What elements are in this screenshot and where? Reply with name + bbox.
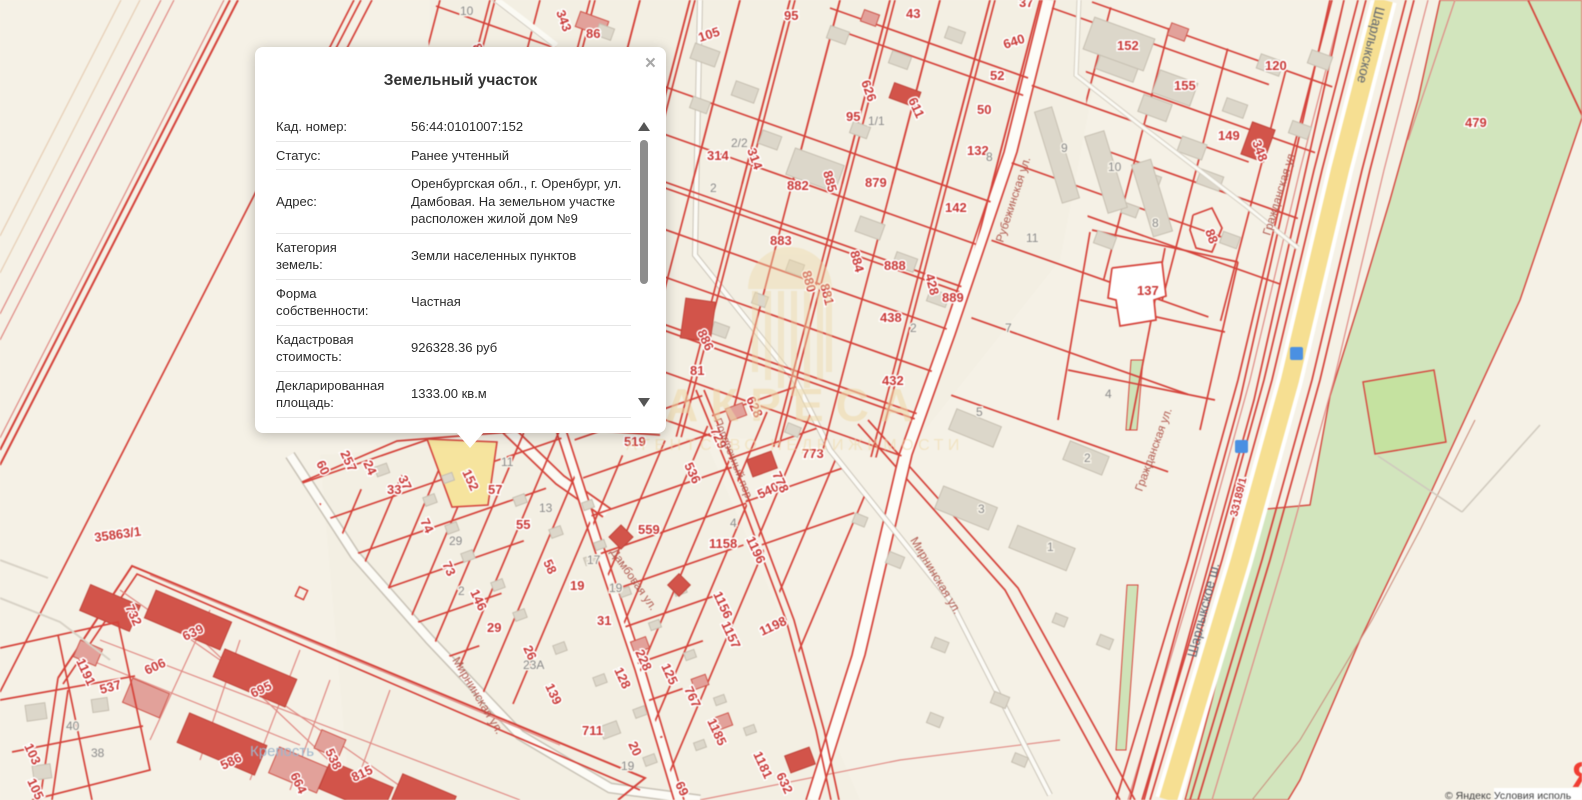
svg-text:40: 40 <box>66 719 80 733</box>
svg-text:889: 889 <box>942 290 964 305</box>
svg-text:882: 882 <box>787 178 809 193</box>
svg-text:Крепость: Крепость <box>250 743 314 760</box>
svg-text:9: 9 <box>1061 141 1068 155</box>
svg-text:95: 95 <box>784 8 798 23</box>
svg-text:3: 3 <box>978 502 985 516</box>
svg-text:29: 29 <box>487 620 501 635</box>
svg-text:2: 2 <box>710 181 717 195</box>
svg-text:4: 4 <box>730 516 737 530</box>
svg-text:8: 8 <box>986 150 993 164</box>
svg-text:142: 142 <box>945 200 967 215</box>
svg-text:81: 81 <box>690 363 704 378</box>
svg-text:95: 95 <box>846 109 860 124</box>
svg-text:43: 43 <box>906 6 920 21</box>
svg-text:17: 17 <box>587 553 601 567</box>
svg-text:2: 2 <box>910 321 917 335</box>
svg-text:152: 152 <box>1117 38 1139 53</box>
svg-text:10: 10 <box>460 4 474 18</box>
svg-text:4: 4 <box>1105 387 1112 401</box>
svg-text:120: 120 <box>1265 58 1287 73</box>
svg-text:8: 8 <box>1152 216 1159 230</box>
svg-text:86: 86 <box>586 26 600 41</box>
svg-text:149: 149 <box>1218 128 1240 143</box>
svg-text:31: 31 <box>597 613 611 628</box>
svg-text:37: 37 <box>1019 0 1033 10</box>
svg-text:52: 52 <box>990 68 1004 83</box>
svg-text:33: 33 <box>387 482 401 497</box>
svg-text:883: 883 <box>770 233 792 248</box>
svg-text:50: 50 <box>977 102 991 117</box>
svg-text:2: 2 <box>458 584 465 598</box>
svg-text:155: 155 <box>1174 78 1196 93</box>
svg-text:479: 479 <box>1465 115 1487 130</box>
svg-text:11: 11 <box>501 455 514 469</box>
svg-text:2: 2 <box>1084 451 1091 465</box>
svg-text:879: 879 <box>865 175 887 190</box>
svg-text:57: 57 <box>488 482 502 497</box>
svg-text:1/1: 1/1 <box>868 114 885 128</box>
svg-text:888: 888 <box>884 258 906 273</box>
svg-text:7: 7 <box>1005 321 1012 335</box>
svg-text:438: 438 <box>880 310 902 325</box>
svg-text:АГЕНТСТВО НЕДВИЖИМОСТИ: АГЕНТСТВО НЕДВИЖИМОСТИ <box>626 437 964 454</box>
svg-text:5: 5 <box>976 405 983 419</box>
svg-text:11: 11 <box>1026 231 1039 245</box>
svg-text:© Яндекс Условия исполь: © Яндекс Условия исполь <box>1445 790 1572 800</box>
svg-text:38: 38 <box>91 746 105 760</box>
svg-text:314: 314 <box>707 148 729 163</box>
svg-text:19: 19 <box>621 759 635 773</box>
svg-text:1: 1 <box>1047 540 1054 554</box>
svg-text:АКРЕСА: АКРЕСА <box>665 379 925 431</box>
svg-text:29: 29 <box>449 534 463 548</box>
svg-text:23A: 23A <box>523 658 544 672</box>
svg-text:55: 55 <box>516 517 530 532</box>
svg-text:137: 137 <box>1137 283 1159 298</box>
svg-text:1158: 1158 <box>709 536 737 551</box>
svg-text:711: 711 <box>582 723 603 738</box>
svg-text:13: 13 <box>539 501 553 515</box>
svg-text:19: 19 <box>570 578 584 593</box>
svg-text:19: 19 <box>609 581 623 595</box>
svg-text:559: 559 <box>638 522 660 537</box>
svg-text:10: 10 <box>1108 160 1122 174</box>
svg-text:2/2: 2/2 <box>731 136 748 150</box>
